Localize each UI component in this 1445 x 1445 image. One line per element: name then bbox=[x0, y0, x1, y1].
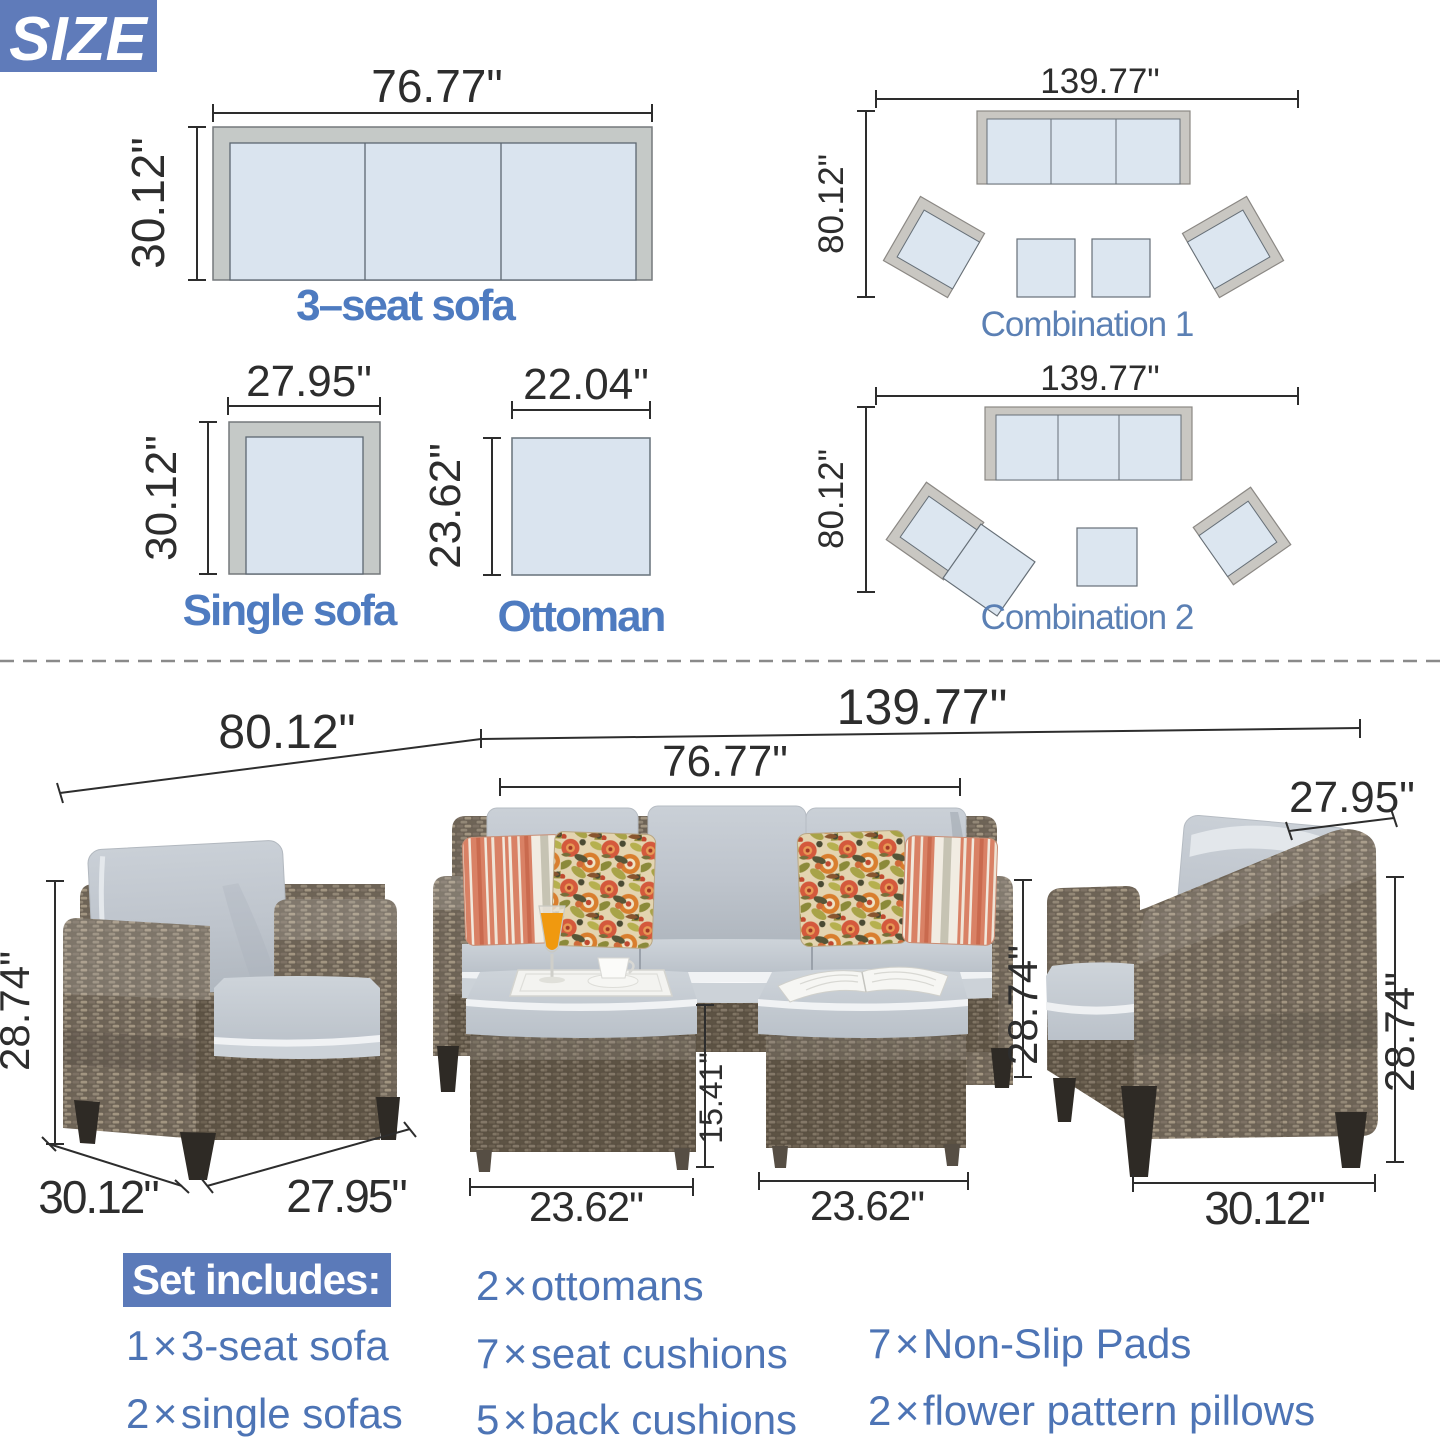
svg-text:Set includes:: Set includes: bbox=[132, 1256, 380, 1303]
svg-text:Combination 2: Combination 2 bbox=[981, 598, 1194, 637]
svg-text:28.74": 28.74" bbox=[999, 945, 1046, 1065]
svg-text:Single sofa: Single sofa bbox=[183, 586, 398, 635]
svg-text:SIZE: SIZE bbox=[9, 5, 148, 74]
svg-text:76.77": 76.77" bbox=[662, 737, 788, 786]
svg-text:2 × flower pattern pillows: 2 × flower pattern pillows bbox=[868, 1387, 1315, 1434]
svg-text:30.12": 30.12" bbox=[1204, 1182, 1324, 1234]
svg-text:30.12": 30.12" bbox=[137, 435, 186, 561]
svg-text:3–seat sofa: 3–seat sofa bbox=[296, 281, 516, 330]
svg-text:23.62": 23.62" bbox=[810, 1182, 924, 1229]
svg-text:27.95": 27.95" bbox=[1289, 773, 1415, 822]
svg-text:Combination 1: Combination 1 bbox=[981, 305, 1194, 344]
svg-text:27.95": 27.95" bbox=[246, 357, 372, 406]
svg-text:2 × single sofas: 2 × single sofas bbox=[126, 1390, 403, 1437]
svg-text:7 × seat cushions: 7 × seat cushions bbox=[476, 1330, 788, 1377]
svg-text:5 × back cushions: 5 × back cushions bbox=[476, 1396, 797, 1443]
svg-text:30.12": 30.12" bbox=[38, 1171, 158, 1223]
svg-text:139.77": 139.77" bbox=[837, 679, 1008, 735]
svg-text:28.74": 28.74" bbox=[1376, 972, 1423, 1092]
svg-text:22.04": 22.04" bbox=[523, 360, 649, 409]
svg-text:2 × ottomans: 2 × ottomans bbox=[476, 1262, 704, 1309]
svg-text:80.12": 80.12" bbox=[812, 154, 851, 254]
svg-text:139.77": 139.77" bbox=[1040, 359, 1159, 398]
svg-text:80.12": 80.12" bbox=[812, 449, 851, 549]
svg-text:80.12": 80.12" bbox=[218, 706, 355, 759]
svg-text:Ottoman: Ottoman bbox=[498, 592, 665, 641]
svg-text:139.77": 139.77" bbox=[1040, 62, 1159, 101]
svg-text:23.62": 23.62" bbox=[529, 1183, 643, 1230]
svg-text:28.74": 28.74" bbox=[0, 951, 38, 1071]
svg-text:7 × Non-Slip Pads: 7 × Non-Slip Pads bbox=[868, 1320, 1191, 1367]
svg-text:27.95": 27.95" bbox=[286, 1170, 406, 1222]
svg-text:15.41": 15.41" bbox=[693, 1052, 729, 1143]
svg-text:30.12": 30.12" bbox=[122, 137, 174, 268]
svg-text:76.77": 76.77" bbox=[371, 60, 502, 112]
svg-text:23.62": 23.62" bbox=[421, 443, 470, 569]
svg-text:1 × 3-seat sofa: 1 × 3-seat sofa bbox=[126, 1322, 389, 1369]
